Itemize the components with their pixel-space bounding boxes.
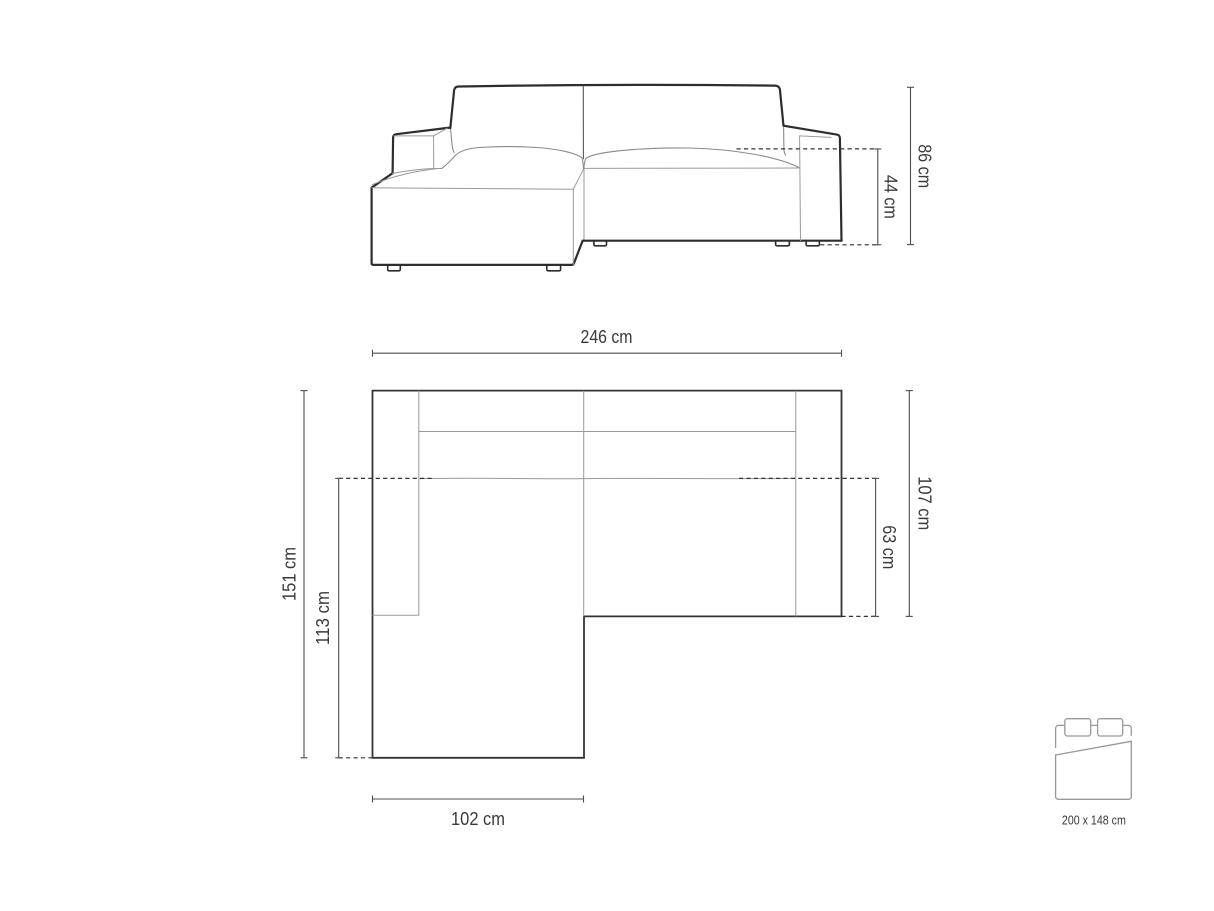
svg-text:86 cm: 86 cm <box>915 144 936 188</box>
svg-text:151 cm: 151 cm <box>279 547 300 601</box>
svg-text:44 cm: 44 cm <box>880 175 901 219</box>
svg-text:102 cm: 102 cm <box>451 808 505 829</box>
svg-text:107 cm: 107 cm <box>914 476 935 530</box>
svg-text:113 cm: 113 cm <box>312 591 333 645</box>
svg-text:200 x 148 cm: 200 x 148 cm <box>1062 813 1126 828</box>
svg-text:246 cm: 246 cm <box>581 326 633 347</box>
svg-text:63 cm: 63 cm <box>879 525 900 569</box>
